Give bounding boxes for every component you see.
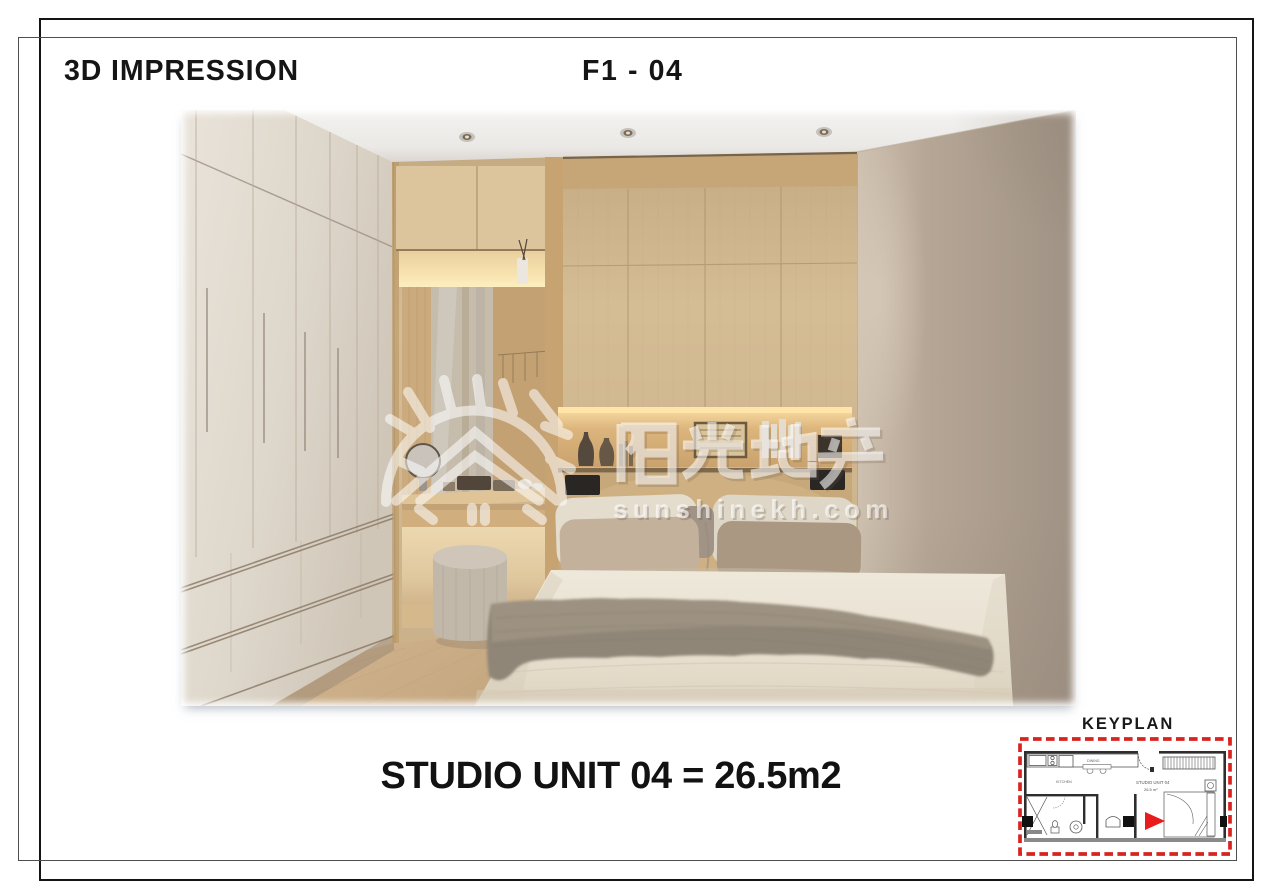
svg-text:26.5 m²: 26.5 m² xyxy=(1144,787,1158,792)
svg-text:DINING: DINING xyxy=(1087,759,1100,763)
svg-text:STUDIO UNIT 04: STUDIO UNIT 04 xyxy=(1136,780,1170,785)
svg-text:KITCHEN: KITCHEN xyxy=(1056,780,1072,784)
